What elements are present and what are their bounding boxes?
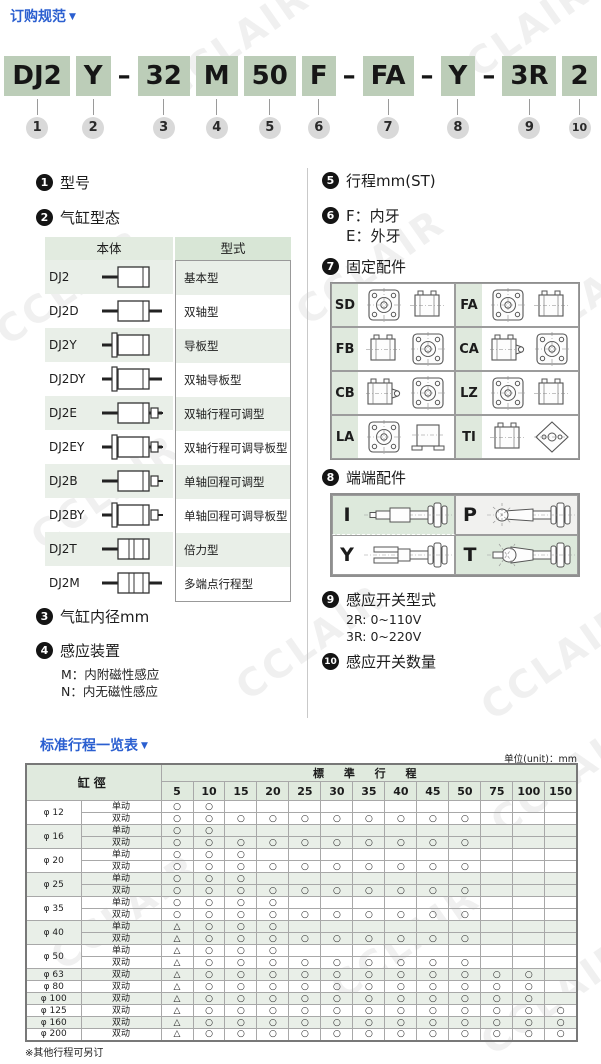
cyl-double-adjust-icon <box>97 400 167 426</box>
bore-cell: φ 25 <box>26 873 81 897</box>
stroke-mark-cell <box>385 873 417 885</box>
table-row: φ 20单动○○○ <box>26 849 577 861</box>
spec-columns: 1 型号 2 气缸型态 本体 DJ2DJ2DDJ2YDJ2DYDJ2EDJ2EY… <box>0 164 601 724</box>
model-code-number: 8 <box>447 117 469 139</box>
connector-line <box>216 99 217 115</box>
stroke-mark-cell <box>289 921 321 933</box>
table-row: φ 35单动○○○○ <box>26 897 577 909</box>
table-row: 双动△○○○○○○○○○ <box>26 933 577 945</box>
section-4-heading: 4 感应装置 <box>36 640 120 661</box>
stroke-mark-cell <box>385 849 417 861</box>
stroke-mark-cell: ○ <box>353 969 385 981</box>
stroke-mark-cell: ○ <box>161 801 193 813</box>
stroke-mark-cell: ○ <box>417 1005 449 1017</box>
stroke-mark-cell: ○ <box>225 813 257 825</box>
table-row: φ 100双动△○○○○○○○○○○○ <box>26 993 577 1005</box>
stroke-group-header: 標 準 行 程 <box>161 764 577 782</box>
stroke-mark-cell: ○ <box>161 849 193 861</box>
stroke-mark-cell <box>545 813 577 825</box>
section-5-number-icon: 5 <box>322 172 339 189</box>
connector-line <box>269 99 270 115</box>
stroke-mark-cell <box>353 825 385 837</box>
cylinder-model-label: DJ2E <box>45 406 97 420</box>
stroke-mark-cell: ○ <box>225 861 257 873</box>
stroke-mark-cell: ○ <box>289 981 321 993</box>
stroke-mark-cell: ○ <box>321 981 353 993</box>
stroke-mark-cell: ○ <box>289 885 321 897</box>
stroke-mark-cell: ○ <box>321 1005 353 1017</box>
stroke-mark-cell: ○ <box>225 1005 257 1017</box>
stroke-mark-cell: ○ <box>289 957 321 969</box>
section-title-ordering-spec[interactable]: 订购规范▼ <box>10 6 76 26</box>
stroke-mark-cell <box>513 885 545 897</box>
table-row: DJ2BY <box>45 498 173 532</box>
action-cell: 单动 <box>81 897 161 909</box>
stroke-mark-cell: ○ <box>257 993 289 1005</box>
stroke-mark-cell: ○ <box>193 885 225 897</box>
stroke-mark-cell: ○ <box>481 981 513 993</box>
stroke-mark-cell: ○ <box>161 837 193 849</box>
stroke-mark-cell <box>289 825 321 837</box>
action-cell: 单动 <box>81 849 161 861</box>
model-code-segment: FA7 <box>363 56 414 139</box>
thread-option-f: F：内牙 <box>346 205 400 226</box>
stroke-mark-cell <box>481 945 513 957</box>
stroke-mark-cell <box>513 945 545 957</box>
end-cell-T: T <box>455 535 578 575</box>
stroke-mark-cell <box>545 933 577 945</box>
front-view-icon <box>366 420 402 454</box>
standard-stroke-table: 缸徑標 準 行 程510152025303540455075100150φ 12… <box>25 763 578 1042</box>
mounting-label: TI <box>456 416 482 458</box>
front-view-icon <box>410 376 446 410</box>
table-row: 双动○○○○○○○○○○ <box>26 813 577 825</box>
stroke-mark-cell: ○ <box>513 1029 545 1041</box>
end-fitting-label: I <box>333 504 361 526</box>
stroke-mark-cell: ○ <box>193 849 225 861</box>
model-code-dash: – <box>342 56 357 96</box>
stroke-mark-cell <box>545 837 577 849</box>
stroke-mark-cell: ○ <box>513 993 545 1005</box>
stroke-mark-cell: ○ <box>161 885 193 897</box>
action-cell: 单动 <box>81 825 161 837</box>
stroke-mark-cell: ○ <box>449 861 481 873</box>
stroke-mark-cell <box>545 909 577 921</box>
cylinder-type-label: 双轴导板型 <box>176 363 290 397</box>
action-cell: 双动 <box>81 981 161 993</box>
cylinder-model-label: DJ2B <box>45 474 97 488</box>
stroke-mark-cell: ○ <box>289 933 321 945</box>
stroke-column-header: 100 <box>513 782 545 801</box>
stroke-mark-cell: ○ <box>353 1029 385 1041</box>
section-8-heading: 8 端端配件 <box>322 467 406 488</box>
stroke-mark-cell: ○ <box>545 1005 577 1017</box>
stroke-mark-cell: ○ <box>417 1029 449 1041</box>
stroke-mark-cell: ○ <box>321 1017 353 1029</box>
table-row: φ 63双动△○○○○○○○○○○○ <box>26 969 577 981</box>
stroke-mark-cell <box>481 837 513 849</box>
stroke-mark-cell: ○ <box>321 1029 353 1041</box>
side-view-icon <box>534 288 570 322</box>
model-code-number: 6 <box>308 117 330 139</box>
bore-cell: φ 16 <box>26 825 81 849</box>
action-cell: 双动 <box>81 957 161 969</box>
stroke-mark-cell <box>353 849 385 861</box>
section-3-number-icon: 3 <box>36 608 53 625</box>
table-row: 双动○○○○○○○○○○ <box>26 837 577 849</box>
stroke-mark-cell <box>289 801 321 813</box>
stroke-mark-cell <box>353 897 385 909</box>
model-code-number: 10 <box>569 117 591 139</box>
stroke-mark-cell: △ <box>161 1005 193 1017</box>
cylinder-type-label: 双轴行程可调导板型 <box>176 431 290 465</box>
mounting-cell-FB: FB <box>331 327 455 371</box>
stroke-mark-cell <box>545 945 577 957</box>
cylinder-model-label: DJ2EY <box>45 440 97 454</box>
connector-line <box>37 99 38 115</box>
stroke-mark-cell: ○ <box>225 981 257 993</box>
stroke-mark-cell <box>513 837 545 849</box>
cylinder-type-label: 双轴型 <box>176 295 290 329</box>
side-view-icon <box>366 332 402 366</box>
stroke-mark-cell <box>257 825 289 837</box>
stroke-mark-cell: ○ <box>449 981 481 993</box>
stroke-mark-cell <box>353 921 385 933</box>
section-5-heading: 5 行程mm(ST) <box>322 170 436 191</box>
stroke-mark-cell: △ <box>161 969 193 981</box>
action-cell: 单动 <box>81 801 161 813</box>
stroke-mark-cell <box>385 921 417 933</box>
rod-end-ball-joint-icon <box>484 539 577 571</box>
stroke-mark-cell: ○ <box>385 981 417 993</box>
stroke-mark-cell: ○ <box>193 981 225 993</box>
section-1-number-icon: 1 <box>36 174 53 191</box>
stroke-mark-cell <box>513 825 545 837</box>
stroke-mark-cell: ○ <box>545 1017 577 1029</box>
connector-line <box>388 99 389 115</box>
connector-line <box>318 99 319 115</box>
stroke-mark-cell <box>481 813 513 825</box>
model-code-segment: 505 <box>244 56 296 139</box>
stroke-mark-cell <box>513 909 545 921</box>
front-view-icon <box>490 288 526 322</box>
stroke-mark-cell <box>449 849 481 861</box>
stroke-mark-cell: ○ <box>257 933 289 945</box>
model-code-number: 1 <box>26 117 48 139</box>
stroke-mark-cell <box>353 873 385 885</box>
table-row: 双动○○○○○○○○○○ <box>26 909 577 921</box>
rod-end-ball-icon <box>484 499 577 531</box>
model-code-dash: – <box>117 56 132 96</box>
stroke-mark-cell: ○ <box>417 861 449 873</box>
stroke-mark-cell: ○ <box>257 957 289 969</box>
model-code-number: 4 <box>206 117 228 139</box>
table-row: φ 50单动△○○○ <box>26 945 577 957</box>
cyl-double-guide-icon <box>97 366 167 392</box>
stroke-mark-cell: ○ <box>225 933 257 945</box>
stroke-mark-cell: ○ <box>225 909 257 921</box>
stroke-mark-cell: ○ <box>161 825 193 837</box>
stroke-mark-cell <box>417 921 449 933</box>
stroke-mark-cell: ○ <box>225 897 257 909</box>
bore-cell: φ 12 <box>26 801 81 825</box>
stroke-mark-cell: ○ <box>353 981 385 993</box>
stroke-column-header: 35 <box>353 782 385 801</box>
stroke-section: 标准行程一览表▼ 单位(unit)：mm 缸徑標 準 行 程5101520253… <box>0 735 601 755</box>
table-row: φ 125双动△○○○○○○○○○○○○ <box>26 1005 577 1017</box>
stroke-mark-cell <box>321 945 353 957</box>
stroke-column-header: 5 <box>161 782 193 801</box>
stroke-mark-cell: ○ <box>257 885 289 897</box>
stroke-mark-cell <box>353 801 385 813</box>
stroke-mark-cell <box>513 861 545 873</box>
stroke-mark-cell: ○ <box>449 813 481 825</box>
stroke-mark-cell: ○ <box>417 837 449 849</box>
stroke-mark-cell <box>289 897 321 909</box>
section-7-heading: 7 固定配件 <box>322 256 406 277</box>
stroke-mark-cell <box>321 873 353 885</box>
table-row: φ 40单动△○○○ <box>26 921 577 933</box>
stroke-mark-cell: △ <box>161 993 193 1005</box>
model-code-box: 2 <box>562 56 596 96</box>
stroke-mark-cell: ○ <box>193 897 225 909</box>
stroke-mark-cell <box>513 873 545 885</box>
stroke-mark-cell: ○ <box>257 1029 289 1041</box>
stroke-mark-cell: ○ <box>289 969 321 981</box>
stroke-mark-cell <box>321 801 353 813</box>
stroke-mark-cell: ○ <box>353 933 385 945</box>
stroke-mark-cell: ○ <box>481 1029 513 1041</box>
model-code-segment: DJ21 <box>4 56 69 139</box>
stroke-mark-cell: ○ <box>289 1029 321 1041</box>
cylinder-model-label: DJ2Y <box>45 338 97 352</box>
stroke-mark-cell: ○ <box>193 969 225 981</box>
action-cell: 双动 <box>81 969 161 981</box>
stroke-mark-cell: ○ <box>225 921 257 933</box>
stroke-mark-cell: ○ <box>225 873 257 885</box>
sensor-option-n: N：内无磁性感应 <box>61 681 158 700</box>
action-cell: 单动 <box>81 945 161 957</box>
stroke-mark-cell: ○ <box>417 981 449 993</box>
stroke-mark-cell <box>481 897 513 909</box>
stroke-mark-cell <box>481 801 513 813</box>
table-row: DJ2DY <box>45 362 173 396</box>
model-code-segment: M4 <box>196 56 238 139</box>
catalog-page: CCLAIRCCLAIRCCLAIRCCLAIRCCLAIRCCLAIRCCLA… <box>0 0 601 1064</box>
stroke-mark-cell <box>449 801 481 813</box>
stroke-mark-cell: ○ <box>353 993 385 1005</box>
stroke-mark-cell: ○ <box>417 933 449 945</box>
stroke-mark-cell: △ <box>161 981 193 993</box>
stroke-mark-cell: ○ <box>385 933 417 945</box>
front-view-icon <box>410 332 446 366</box>
stroke-mark-cell: ○ <box>417 885 449 897</box>
end-cell-P: P <box>455 495 578 535</box>
stroke-mark-cell <box>481 933 513 945</box>
cylinder-type-table: 本体 DJ2DJ2DDJ2YDJ2DYDJ2EDJ2EYDJ2BDJ2BYDJ2… <box>45 237 291 602</box>
model-code-dash: – <box>420 56 435 96</box>
stroke-mark-cell: ○ <box>385 837 417 849</box>
model-code-box: 3R <box>502 56 556 96</box>
stroke-mark-cell: △ <box>161 921 193 933</box>
cyl-double-shaft-icon <box>97 298 167 324</box>
stroke-column-header: 25 <box>289 782 321 801</box>
stroke-mark-cell: ○ <box>193 957 225 969</box>
stroke-column-header: 45 <box>417 782 449 801</box>
stroke-column-header: 20 <box>257 782 289 801</box>
stroke-mark-cell: ○ <box>257 909 289 921</box>
connector-line <box>163 99 164 115</box>
table-row: 双动○○○○○○○○○○ <box>26 885 577 897</box>
bore-cell: φ 35 <box>26 897 81 921</box>
stroke-mark-cell: ○ <box>385 861 417 873</box>
table-row: φ 160双动△○○○○○○○○○○○○ <box>26 1017 577 1029</box>
thread-option-e: E：外牙 <box>346 225 400 246</box>
table-row: DJ2EY <box>45 430 173 464</box>
stroke-mark-cell: ○ <box>225 993 257 1005</box>
stroke-mark-cell <box>449 873 481 885</box>
cylinder-model-label: DJ2DY <box>45 372 97 386</box>
stroke-mark-cell: ○ <box>417 969 449 981</box>
cyl-tandem-icon <box>97 536 167 562</box>
stroke-mark-cell: ○ <box>289 813 321 825</box>
stroke-mark-cell <box>545 801 577 813</box>
bore-cell: φ 160 <box>26 1017 81 1029</box>
stroke-mark-cell <box>353 945 385 957</box>
stroke-mark-cell: ○ <box>321 885 353 897</box>
cylinder-model-label: DJ2BY <box>45 508 97 522</box>
stroke-mark-cell: ○ <box>513 981 545 993</box>
stroke-mark-cell: ○ <box>193 993 225 1005</box>
stroke-mark-cell: ○ <box>321 813 353 825</box>
cyl-guide-icon <box>97 332 167 358</box>
section-4-number-icon: 4 <box>36 642 53 659</box>
stroke-mark-cell <box>481 873 513 885</box>
mounting-cell-LA: LA <box>331 415 455 459</box>
end-cell-Y: Y <box>332 535 455 575</box>
stroke-mark-cell: ○ <box>385 885 417 897</box>
stroke-column-header: 50 <box>449 782 481 801</box>
stroke-mark-cell: ○ <box>289 1017 321 1029</box>
model-code-box: F <box>302 56 336 96</box>
stroke-mark-cell: ○ <box>225 849 257 861</box>
stroke-mark-cell <box>385 801 417 813</box>
stroke-mark-cell: ○ <box>289 1005 321 1017</box>
mounting-cell-FA: FA <box>455 283 579 327</box>
stroke-mark-cell <box>289 873 321 885</box>
stroke-mark-cell: △ <box>161 1029 193 1041</box>
model-code-dash: – <box>481 56 496 96</box>
cylinder-type-label: 导板型 <box>176 329 290 363</box>
stroke-mark-cell: ○ <box>449 1017 481 1029</box>
action-cell: 双动 <box>81 1005 161 1017</box>
action-cell: 双动 <box>81 909 161 921</box>
stroke-mark-cell <box>385 897 417 909</box>
section-2-title: 气缸型态 <box>60 207 120 228</box>
stroke-mark-cell: ○ <box>449 957 481 969</box>
dropdown-arrow-icon: ▼ <box>69 12 76 22</box>
ordering-spec-title: 订购规范 <box>10 9 66 25</box>
action-cell: 双动 <box>81 813 161 825</box>
bore-cell: φ 50 <box>26 945 81 969</box>
stroke-mark-cell: ○ <box>225 1029 257 1041</box>
section-7-number-icon: 7 <box>322 258 339 275</box>
stroke-column-header: 40 <box>385 782 417 801</box>
stroke-mark-cell: ○ <box>257 981 289 993</box>
model-code-number: 2 <box>82 117 104 139</box>
front-view-icon <box>366 288 402 322</box>
mounting-label: LZ <box>456 372 482 414</box>
stroke-mark-cell: ○ <box>385 993 417 1005</box>
section-10-title: 感应开关数量 <box>346 651 436 672</box>
section-title-stroke-list[interactable]: 标准行程一览表▼ <box>40 735 148 755</box>
model-code-segment: 323 <box>138 56 190 139</box>
stroke-mark-cell <box>289 945 321 957</box>
stroke-mark-cell: ○ <box>417 1017 449 1029</box>
table-row: 双动○○○○○○○○○○ <box>26 861 577 873</box>
stroke-mark-cell: ○ <box>257 813 289 825</box>
stroke-mark-cell: ○ <box>449 909 481 921</box>
mounting-accessory-grid: SDFAFBCACBLZLATI <box>330 282 580 460</box>
stroke-mark-cell <box>545 993 577 1005</box>
stroke-mark-cell: ○ <box>193 909 225 921</box>
stroke-mark-cell <box>545 897 577 909</box>
stroke-mark-cell: ○ <box>257 1017 289 1029</box>
model-code-segment: 210 <box>562 56 596 139</box>
stroke-mark-cell <box>417 801 449 813</box>
bore-column-header: 缸徑 <box>26 764 161 801</box>
stroke-mark-cell <box>385 945 417 957</box>
model-code-number: 7 <box>377 117 399 139</box>
stroke-mark-cell <box>545 885 577 897</box>
action-cell: 双动 <box>81 837 161 849</box>
table-row: DJ2 <box>45 260 173 294</box>
switch-type-2r: 2R: 0~110V <box>346 612 421 627</box>
action-cell: 双动 <box>81 885 161 897</box>
stroke-mark-cell: ○ <box>385 909 417 921</box>
section-7-title: 固定配件 <box>346 256 406 277</box>
stroke-mark-cell: ○ <box>193 861 225 873</box>
stroke-mark-cell <box>513 897 545 909</box>
section-10-heading: 10 感应开关数量 <box>322 651 436 672</box>
stroke-mark-cell: ○ <box>513 1017 545 1029</box>
stroke-mark-cell <box>417 897 449 909</box>
stroke-mark-cell <box>513 957 545 969</box>
model-code-segment: 3R9 <box>502 56 556 139</box>
end-fitting-label: T <box>456 544 484 566</box>
stroke-mark-cell: ○ <box>193 837 225 849</box>
cyl-double-adjust-guide-icon <box>97 434 167 460</box>
section-3-title: 气缸内径mm <box>60 606 149 627</box>
cylinder-type-label: 双轴行程可调型 <box>176 397 290 431</box>
mounting-label: FA <box>456 284 482 326</box>
footnote: ※其他行程可另订 <box>25 1044 103 1059</box>
table-row: φ 25单动○○○ <box>26 873 577 885</box>
table-row: DJ2E <box>45 396 173 430</box>
stroke-mark-cell: △ <box>161 933 193 945</box>
model-code-box: Y <box>76 56 111 96</box>
stroke-mark-cell <box>513 849 545 861</box>
cylinder-type-label: 基本型 <box>176 261 290 295</box>
model-code-segment: F6 <box>302 56 336 139</box>
stroke-mark-cell <box>513 921 545 933</box>
stroke-mark-cell: ○ <box>225 969 257 981</box>
stroke-mark-cell <box>545 921 577 933</box>
side-view-icon <box>534 376 570 410</box>
mounting-cell-SD: SD <box>331 283 455 327</box>
stroke-mark-cell: ○ <box>353 861 385 873</box>
bore-cell: φ 80 <box>26 981 81 993</box>
